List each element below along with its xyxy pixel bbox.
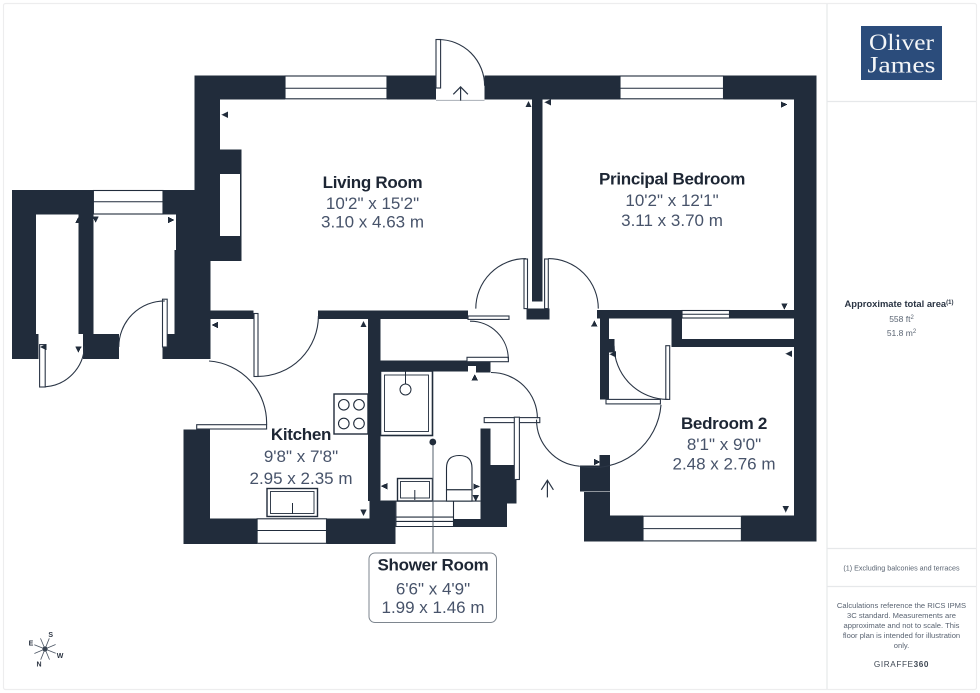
svg-text:only.: only.: [894, 641, 909, 650]
svg-text:2.48 x 2.76 m: 2.48 x 2.76 m: [672, 455, 775, 474]
svg-text:Shower Room: Shower Room: [378, 556, 489, 575]
svg-text:8'1" x 9'0": 8'1" x 9'0": [687, 435, 761, 454]
svg-text:W: W: [57, 653, 64, 660]
svg-text:(1) Excluding balconies and te: (1) Excluding balconies and terraces: [843, 564, 960, 573]
svg-text:Living Room: Living Room: [323, 173, 423, 192]
svg-text:approximate and not to scale.: approximate and not to scale. This: [844, 621, 960, 630]
svg-text:6'6" x 4'9": 6'6" x 4'9": [396, 580, 470, 599]
svg-text:3.11 x 3.70 m: 3.11 x 3.70 m: [621, 211, 723, 230]
svg-text:Calculations reference the RIC: Calculations reference the RICS IPMS: [837, 601, 966, 610]
svg-text:Bedroom 2: Bedroom 2: [681, 414, 767, 433]
svg-text:51.8 m2: 51.8 m2: [887, 328, 917, 338]
svg-text:E: E: [29, 640, 34, 647]
svg-text:Principal Bedroom: Principal Bedroom: [599, 170, 745, 189]
svg-text:2.95 x 2.35 m: 2.95 x 2.35 m: [249, 469, 352, 488]
svg-text:Oliver: Oliver: [869, 30, 934, 55]
svg-text:floor plan is intended for ill: floor plan is intended for illustration: [843, 631, 960, 640]
svg-text:10'2" x 15'2": 10'2" x 15'2": [326, 194, 419, 213]
svg-text:James: James: [868, 53, 936, 78]
svg-text:Kitchen: Kitchen: [271, 425, 331, 444]
svg-text:Approximate total area(1): Approximate total area(1): [845, 298, 954, 309]
svg-text:N: N: [36, 661, 41, 668]
svg-text:9'8" x 7'8": 9'8" x 7'8": [264, 447, 338, 466]
svg-text:S: S: [48, 632, 53, 639]
svg-text:10'2" x 12'1": 10'2" x 12'1": [625, 191, 718, 210]
svg-text:1.99 x 1.46 m: 1.99 x 1.46 m: [381, 598, 484, 617]
svg-text:3C standard. Measurements are: 3C standard. Measurements are: [847, 611, 956, 620]
svg-text:GIRAFFE360: GIRAFFE360: [874, 660, 929, 669]
svg-text:3.10 x 4.63 m: 3.10 x 4.63 m: [321, 213, 424, 232]
